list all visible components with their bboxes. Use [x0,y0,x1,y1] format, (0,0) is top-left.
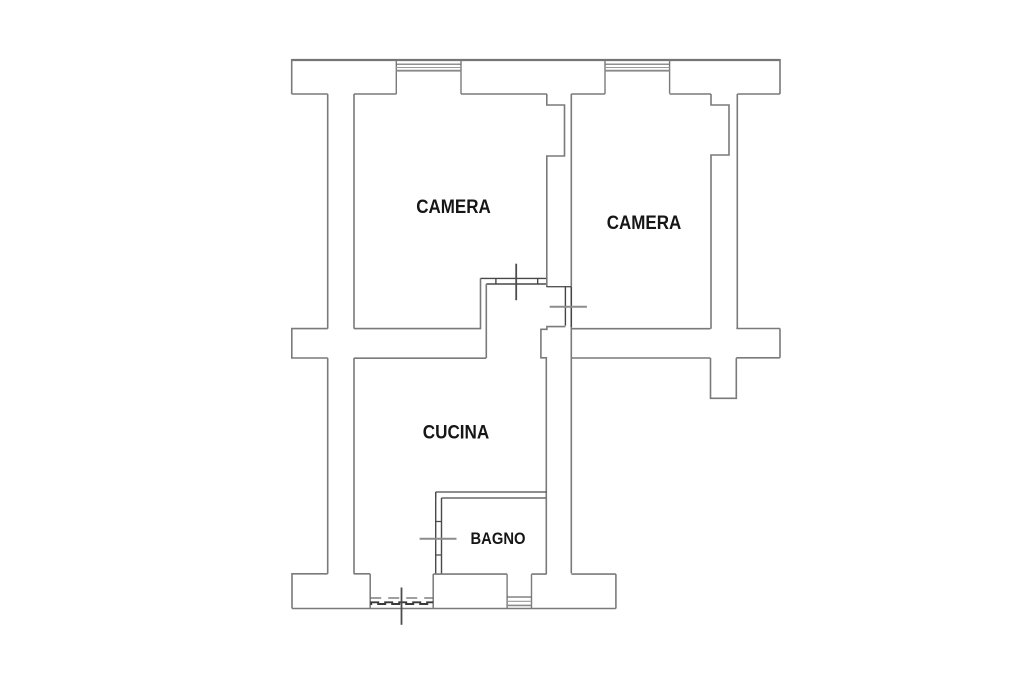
svg-text:CAMERA: CAMERA [416,196,491,218]
svg-text:BAGNO: BAGNO [471,530,526,548]
svg-text:CUCINA: CUCINA [423,422,490,444]
svg-text:CAMERA: CAMERA [607,212,682,234]
